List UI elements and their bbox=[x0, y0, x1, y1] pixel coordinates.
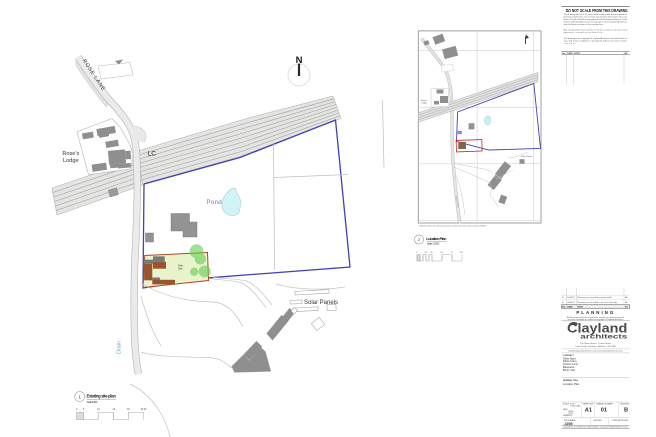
svg-text:BA17 2LH: BA17 2LH bbox=[563, 368, 575, 372]
svg-text:40.00: 40.00 bbox=[141, 408, 148, 411]
svg-text:and the latest revisions of th: and the latest revisions of the reported… bbox=[564, 23, 604, 26]
svg-text:architects: architects bbox=[580, 333, 628, 340]
svg-text:Lodge: Lodge bbox=[421, 102, 427, 104]
svg-text:A1: A1 bbox=[585, 408, 592, 414]
svg-text:Solar Panels: Solar Panels bbox=[304, 300, 338, 306]
svg-text:Existing site plan: Existing site plan bbox=[87, 394, 117, 399]
svg-text:SCALE: SCALE bbox=[563, 402, 570, 405]
svg-text:Planning issue amended as note: Planning issue amended as noted rev(B) bbox=[577, 296, 612, 299]
svg-text:The Stone House • 2 Lower St: The Stone House • 2 Lower Street bbox=[580, 342, 611, 345]
svg-text:DRAWING NUMBER: DRAWING NUMBER bbox=[596, 402, 614, 405]
svg-text:NOTE: NOTE bbox=[574, 53, 580, 55]
svg-text:REVISION: REVISION bbox=[620, 403, 629, 405]
svg-text:NO.: NO. bbox=[562, 306, 566, 308]
svg-text:No.: No. bbox=[562, 53, 566, 55]
svg-text:Dilsie: Dilsie bbox=[178, 266, 184, 268]
svg-text:DO NOT SCALE FROM THIS DRAWING: DO NOT SCALE FROM THIS DRAWING bbox=[566, 8, 628, 13]
svg-text:Lodge: Lodge bbox=[63, 158, 79, 164]
svg-text:NOTE: NOTE bbox=[577, 306, 583, 308]
svg-text:Scale 1:1250: Scale 1:1250 bbox=[427, 242, 440, 246]
svg-text:1:1250 @A1: 1:1250 @A1 bbox=[570, 405, 580, 408]
svg-text:Location Plan: Location Plan bbox=[426, 236, 447, 241]
svg-text:2205: 2205 bbox=[565, 422, 573, 426]
svg-text:Location Plan: Location Plan bbox=[563, 382, 580, 386]
svg-text:DRAWN BY: DRAWN BY bbox=[563, 414, 573, 417]
svg-text:B: B bbox=[624, 408, 628, 414]
svg-text:Barn: Barn bbox=[178, 267, 184, 270]
svg-text:consent.: consent. bbox=[564, 42, 577, 45]
svg-text:Rose's: Rose's bbox=[62, 151, 79, 157]
svg-text:LC: LC bbox=[148, 151, 157, 158]
svg-text:approvals arrived at the lates: approvals arrived at the latest etc. bbox=[564, 31, 604, 34]
svg-text:Pond: Pond bbox=[207, 200, 223, 206]
svg-text:DATE: DATE bbox=[567, 305, 573, 308]
svg-text:CLIENT APPROVED: CLIENT APPROVED bbox=[612, 419, 629, 422]
svg-text:10/04/24: 10/04/24 bbox=[567, 297, 574, 299]
svg-text:CHECKED: CHECKED bbox=[593, 420, 602, 422]
svg-text:DRAWING TITLE: DRAWING TITLE bbox=[563, 379, 579, 382]
svg-text:DATE: DATE bbox=[567, 52, 573, 55]
svg-text:Solar Panels: Solar Panels bbox=[521, 156, 532, 158]
svg-text:PLANNING: PLANNING bbox=[576, 310, 615, 315]
svg-text:01: 01 bbox=[601, 408, 607, 414]
svg-text:Planning issue amended as per: Planning issue amended as per client not… bbox=[577, 301, 617, 304]
svg-text:Drain: Drain bbox=[117, 341, 123, 354]
svg-text:email@claylandarchitects.co.uk: email@claylandarchitects.co.uk www.clayl… bbox=[568, 350, 623, 353]
svg-text:PAPER SIZE: PAPER SIZE bbox=[583, 402, 594, 405]
svg-text:N: N bbox=[296, 55, 303, 66]
svg-text:Reproduced from the Ordnance S: Reproduced from the Ordnance Survey map … bbox=[419, 225, 487, 228]
svg-text:Lower Road • Salisbury • W: Lower Road • Salisbury • Wiltshire • SP5… bbox=[575, 345, 616, 348]
svg-text:08/04/24: 08/04/24 bbox=[567, 302, 574, 304]
svg-text:Scale 1:500: Scale 1:500 bbox=[87, 400, 98, 404]
